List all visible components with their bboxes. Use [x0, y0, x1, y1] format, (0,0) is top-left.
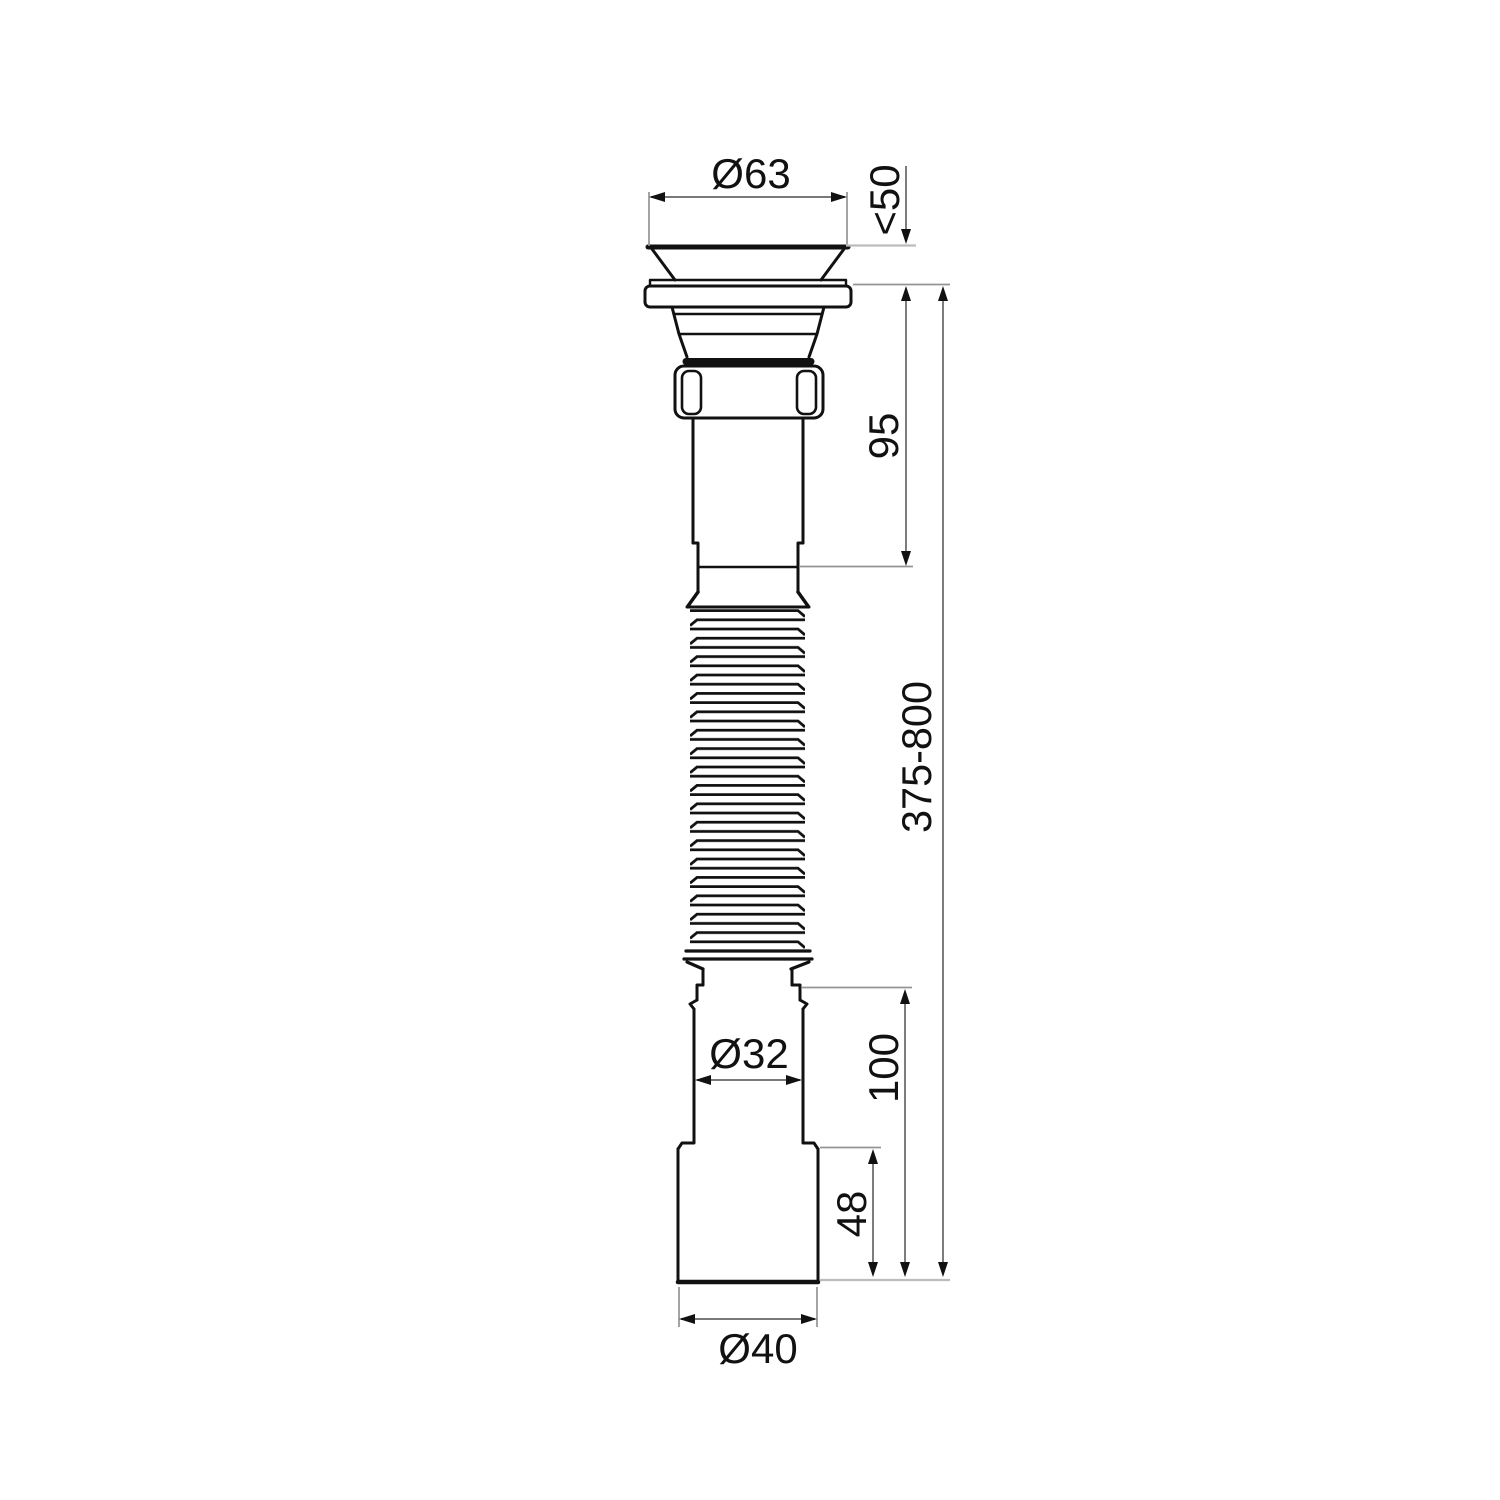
- dim48-arrow-up: [868, 1149, 878, 1164]
- drawing-canvas: Ø63 <50 95 375-800: [0, 0, 1500, 1500]
- flange-body-joints: [674, 314, 822, 334]
- strainer-flange: [645, 247, 851, 362]
- corrugation-texture: [690, 608, 805, 950]
- dim-tailpiece-length: 95: [800, 285, 950, 567]
- dim-label-outlet-tip-length: 48: [828, 1191, 875, 1238]
- dim95-arrow-up: [901, 286, 911, 301]
- dim100-arrow-up: [900, 989, 910, 1004]
- nut-facet-right: [797, 371, 816, 414]
- dim-label-mounting-thickness: <50: [861, 164, 908, 235]
- dim-label-tailpiece-length: 95: [860, 413, 907, 460]
- dim-label-adjustable-length: 375-800: [893, 681, 940, 833]
- dim-outlet-pipe-diameter: Ø32: [695, 1030, 802, 1085]
- outlet-shoulder: [697, 985, 800, 1000]
- dim63-arrow-right: [831, 192, 847, 202]
- dim-flange-diameter: Ø63: [649, 150, 847, 246]
- dim-mounting-thickness: <50: [846, 164, 916, 245]
- hose-bottom-rings: [684, 951, 812, 959]
- dim-label-outlet-length: 100: [860, 1033, 907, 1103]
- nut-body: [675, 366, 823, 418]
- hose-bottom-flare: [687, 962, 809, 969]
- tailpiece-walls: [693, 418, 803, 543]
- tailpiece: [687, 418, 809, 607]
- dim-label-outlet-pipe-diameter: Ø32: [709, 1030, 788, 1077]
- dim-label-outlet-tip-diameter: Ø40: [718, 1325, 797, 1372]
- dim375-arrow-up: [938, 286, 948, 301]
- nut-facet-left: [682, 371, 701, 414]
- dim48-arrow-down: [868, 1262, 878, 1277]
- outlet-step: [678, 1140, 818, 1149]
- flange-cap-sides: [652, 249, 844, 280]
- dim40-extension-lines: [679, 1287, 817, 1327]
- part-outline: [645, 247, 851, 1282]
- dim-outlet-tip-length: 48: [820, 1148, 881, 1278]
- dim-outlet-tip-diameter: Ø40: [679, 1287, 817, 1372]
- dim100-arrow-down: [900, 1262, 910, 1277]
- dim63-extension-lines: [649, 192, 847, 246]
- outlet-neck: [703, 969, 792, 985]
- flange-washer-plate: [645, 286, 851, 307]
- hose-top-flare: [688, 592, 808, 606]
- dim40-arrow-left: [679, 1314, 695, 1324]
- dim-label-flange-diameter: Ø63: [711, 150, 790, 197]
- drain-pipe-technical-drawing: Ø63 <50 95 375-800: [0, 0, 1500, 1500]
- outlet-pipe: [678, 969, 818, 1282]
- dim375-arrow-down: [938, 1262, 948, 1277]
- outlet-tip-walls: [678, 1149, 818, 1280]
- outlet-collar-bump: [690, 1000, 807, 1009]
- dim95-arrow-down: [901, 551, 911, 566]
- dim63-arrow-left: [649, 192, 665, 202]
- dim40-arrow-right: [801, 1314, 817, 1324]
- corrugated-hose: [684, 608, 812, 969]
- lock-nut: [675, 366, 823, 418]
